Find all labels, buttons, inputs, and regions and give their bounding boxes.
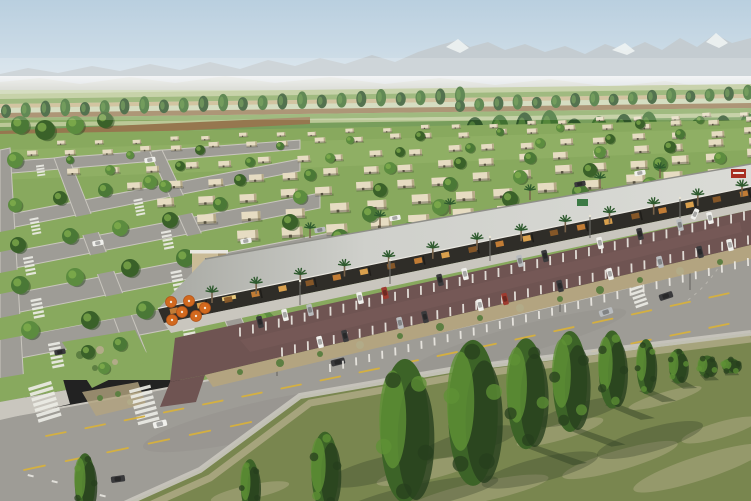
parking-stripe	[359, 329, 361, 338]
house	[412, 194, 433, 206]
house	[565, 125, 577, 132]
tree-highlight	[574, 186, 581, 193]
house	[521, 142, 535, 150]
tree-highlight	[497, 129, 501, 133]
foliage-clump	[411, 376, 427, 392]
car-roof	[114, 476, 121, 481]
house	[65, 150, 77, 157]
atmospheric-haze	[0, 58, 751, 120]
parking-stripe	[682, 275, 684, 283]
house	[593, 137, 607, 145]
parking-stripe	[381, 351, 383, 359]
house-door	[561, 171, 564, 174]
parking-stripe	[665, 229, 667, 238]
house	[315, 137, 327, 144]
pole-lamp	[389, 259, 391, 261]
parking-stripe	[342, 304, 344, 313]
tree-highlight	[596, 148, 601, 153]
shrub	[127, 399, 133, 405]
parking-stripe	[446, 280, 448, 289]
house	[27, 150, 39, 157]
parking-stripe	[447, 334, 449, 342]
house	[218, 161, 232, 169]
parking-stripe	[355, 301, 357, 310]
house	[708, 139, 725, 148]
house-door	[287, 195, 290, 198]
house-door	[250, 145, 252, 147]
parking-stripe	[566, 279, 568, 288]
parking-stripe	[734, 239, 736, 248]
parking-stripe	[304, 313, 306, 322]
foliage-clump	[709, 356, 715, 362]
parking-stripe	[653, 232, 655, 241]
umbrella-tip	[195, 315, 197, 317]
house	[209, 142, 221, 149]
parking-stripe	[342, 361, 344, 369]
house-door	[599, 120, 600, 121]
tree-highlight	[606, 135, 611, 140]
tree-highlight	[246, 158, 251, 163]
house-door	[245, 200, 248, 203]
umbrella-tip	[171, 319, 173, 321]
tree-highlight	[456, 159, 461, 164]
house-door	[712, 160, 715, 163]
shrub	[676, 267, 684, 275]
foliage-clump	[700, 356, 706, 362]
tree-highlight	[12, 239, 19, 246]
house-door	[597, 142, 599, 144]
house	[283, 172, 300, 181]
house-door	[318, 141, 320, 143]
tree-highlight	[585, 165, 591, 171]
parking-stripe	[420, 286, 422, 295]
parking-stripe	[473, 328, 475, 336]
foliage-clump	[537, 397, 549, 409]
house-door	[254, 180, 256, 182]
foliage-clump	[505, 407, 517, 419]
house	[157, 198, 176, 209]
house-door	[525, 147, 527, 149]
parking-stripe	[460, 331, 462, 339]
tree-highlight	[466, 144, 471, 149]
tree-highlight	[176, 162, 181, 167]
parking-stripe	[368, 354, 370, 362]
foliage-clump	[444, 388, 460, 404]
house	[397, 164, 414, 173]
tree-highlight	[196, 146, 201, 151]
scene-canvas	[0, 0, 751, 501]
house-door	[242, 136, 243, 137]
parking-stripe	[368, 298, 370, 307]
foliage-clump	[683, 361, 689, 367]
tree-highlight	[416, 132, 421, 137]
house-door	[204, 202, 207, 205]
parking-stripe	[433, 337, 435, 345]
house-door	[151, 171, 153, 173]
parking-stripe	[691, 223, 693, 232]
tree-highlight	[636, 120, 641, 125]
house-door	[558, 157, 560, 159]
parking-stripe	[407, 344, 409, 352]
parking-stripe	[433, 283, 435, 292]
tree-highlight	[178, 251, 186, 259]
house-door	[321, 193, 324, 196]
house	[390, 133, 402, 140]
parking-stripe	[605, 270, 607, 279]
parking-stripe	[410, 316, 412, 325]
foliage-clump	[74, 495, 81, 501]
house-door	[714, 145, 716, 147]
house-door	[462, 198, 465, 201]
tree-highlight	[375, 185, 381, 191]
parking-stripe	[436, 310, 438, 319]
house	[57, 140, 66, 145]
foliage-clump	[676, 349, 682, 355]
house-door	[248, 218, 251, 221]
tree-highlight	[536, 139, 541, 144]
parking-stripe	[616, 291, 618, 299]
tree-highlight	[295, 192, 301, 198]
tree-highlight	[284, 216, 291, 223]
parking-stripe	[592, 273, 594, 282]
house-door	[492, 127, 493, 128]
tree-highlight	[64, 230, 71, 237]
house-door	[262, 161, 264, 163]
parking-stripe	[577, 301, 579, 309]
parking-stripe	[385, 323, 387, 332]
house	[560, 138, 574, 146]
pole-lamp	[489, 236, 491, 238]
house-door	[190, 167, 192, 169]
shrub	[477, 315, 483, 321]
foliage-clump	[712, 367, 718, 373]
tree-highlight	[23, 323, 31, 331]
house	[146, 166, 160, 174]
house-door	[204, 221, 207, 224]
house-door	[356, 141, 358, 143]
parking-stripe	[394, 292, 396, 301]
parking-stripe	[643, 260, 645, 269]
tree-highlight	[123, 261, 131, 269]
tree-highlight	[164, 214, 171, 221]
parking-stripe	[333, 335, 335, 344]
house-door	[204, 139, 205, 140]
house	[364, 166, 381, 175]
umbrella	[184, 296, 195, 307]
tree-highlight	[114, 222, 121, 229]
house	[171, 145, 183, 152]
parking-stripe	[564, 304, 566, 312]
house-door	[403, 186, 406, 189]
house	[473, 172, 492, 183]
foliage-clump	[720, 361, 726, 367]
house-door	[212, 146, 214, 148]
house	[489, 124, 498, 129]
house	[356, 181, 375, 192]
house	[527, 128, 539, 135]
parking-stripe	[307, 341, 309, 350]
house-door	[98, 143, 99, 144]
parking-stripe	[329, 307, 331, 316]
house-door	[132, 188, 134, 190]
tree-highlight	[277, 143, 281, 147]
umbrella	[200, 303, 211, 314]
tower-cap	[190, 250, 228, 254]
parking-stripe	[329, 364, 331, 372]
house	[208, 179, 225, 188]
foliage-clump	[620, 366, 628, 374]
foliage-clump	[74, 465, 81, 472]
house	[537, 182, 558, 194]
tree-highlight	[67, 157, 71, 161]
umbrella-tip	[170, 301, 172, 303]
house	[708, 120, 720, 127]
foliage-clump	[561, 335, 572, 346]
house	[458, 132, 470, 139]
house-door	[144, 150, 146, 152]
parking-stripe	[656, 281, 658, 289]
house-door	[418, 201, 421, 204]
parking-stripe	[575, 250, 577, 259]
house-door	[568, 129, 570, 131]
house	[421, 125, 430, 130]
foliage-clump	[253, 468, 259, 474]
parking-stripe	[512, 318, 514, 326]
house-door	[348, 132, 349, 133]
parking-stripe	[708, 245, 710, 254]
shrub	[317, 351, 323, 357]
house-door	[413, 154, 415, 156]
shrub	[637, 277, 643, 283]
parking-stripe	[523, 262, 525, 271]
parking-stripe	[407, 289, 409, 298]
house	[744, 127, 751, 135]
parking-stripe	[278, 319, 280, 328]
parking-stripe	[618, 267, 620, 276]
tree-highlight	[445, 179, 451, 185]
house-door	[362, 188, 365, 191]
house	[67, 168, 81, 176]
tree-highlight	[83, 313, 91, 321]
house	[140, 146, 152, 153]
house	[449, 145, 463, 153]
parking-stripe	[525, 314, 527, 322]
umbrella	[166, 297, 177, 308]
foliage-clump	[641, 386, 647, 392]
parking-stripe	[642, 284, 644, 292]
foliage-clump	[679, 376, 685, 382]
shrub	[436, 323, 444, 331]
house-door	[437, 183, 440, 186]
house	[632, 133, 646, 141]
house-door	[588, 187, 591, 190]
foliage-clump	[522, 434, 534, 446]
parking-stripe	[449, 307, 451, 316]
tree-highlight	[100, 364, 105, 369]
foliage-clump	[385, 372, 401, 388]
tree-highlight	[515, 172, 521, 178]
foliage-clump	[254, 495, 260, 501]
parking-stripe	[462, 304, 464, 313]
parking-stripe	[294, 344, 296, 353]
tree-highlight	[13, 278, 21, 286]
parking-stripe	[730, 214, 732, 223]
house	[671, 120, 683, 127]
pole-lamp	[589, 215, 591, 217]
parking-stripe	[549, 256, 551, 265]
house-door	[31, 154, 33, 156]
tree-highlight	[364, 208, 371, 215]
tree-highlight	[115, 339, 121, 345]
house-door	[71, 173, 73, 175]
house	[630, 160, 649, 171]
house-door	[544, 190, 547, 193]
house	[634, 145, 651, 154]
foliage-clump	[528, 347, 540, 359]
tree-highlight	[38, 123, 47, 132]
house	[323, 168, 340, 177]
house	[249, 174, 266, 183]
shrub	[112, 359, 118, 365]
parking-stripe	[538, 311, 540, 319]
house	[553, 152, 570, 161]
house	[747, 148, 751, 159]
foliage-clump	[611, 397, 619, 405]
foliage-clump	[696, 366, 702, 372]
house-door	[455, 127, 456, 128]
foliage-clump	[598, 384, 606, 392]
tree-highlight	[68, 270, 76, 278]
tree-highlight	[557, 125, 561, 129]
house-door	[369, 172, 371, 174]
tree-highlight	[434, 201, 441, 208]
house-door	[68, 154, 70, 156]
pole-lamp	[299, 280, 301, 282]
foliage-clump	[558, 415, 569, 426]
house-door	[174, 149, 176, 151]
house-door	[484, 164, 486, 166]
parking-stripe	[372, 326, 374, 335]
foliage-clump	[612, 334, 620, 342]
house-door	[288, 178, 290, 180]
foliage-clump	[669, 374, 675, 380]
parking-stripe	[265, 322, 267, 331]
house-door	[302, 160, 304, 162]
house-door	[136, 143, 137, 144]
foliage-clump	[549, 372, 560, 383]
shrub	[516, 304, 524, 312]
tree-highlight	[666, 143, 671, 148]
tree-canopy-light	[74, 458, 85, 499]
parking-stripe	[669, 278, 671, 286]
foliage-clump	[85, 456, 92, 463]
parking-stripe	[488, 298, 490, 307]
tree-highlight	[9, 154, 16, 161]
tree-highlight	[504, 193, 511, 200]
parking-stripe	[747, 235, 749, 244]
house	[602, 124, 614, 131]
tree-highlight	[326, 154, 331, 159]
parking-stripe	[355, 357, 357, 365]
aerial-rendering	[0, 0, 751, 501]
foliage-clump	[598, 346, 606, 354]
house	[369, 150, 383, 158]
foliage-clump	[91, 480, 98, 487]
house-door	[462, 136, 464, 138]
parking-stripe	[630, 263, 632, 272]
foliage-clump	[418, 445, 434, 461]
foliage-clump	[479, 453, 495, 469]
parking-stripe	[708, 268, 710, 276]
tree-highlight	[236, 176, 241, 181]
foliage-clump	[578, 355, 589, 366]
house-door	[530, 132, 532, 134]
green-awning	[577, 199, 588, 206]
parking-stripe	[291, 316, 293, 325]
parking-stripe	[614, 241, 616, 250]
house-door	[374, 155, 376, 157]
house-door	[60, 144, 61, 145]
house-door	[639, 151, 641, 153]
parking-stripe	[579, 276, 581, 285]
house	[95, 140, 104, 145]
tree-highlight	[161, 182, 166, 187]
house-door	[163, 204, 166, 207]
parking-stripe	[704, 220, 706, 229]
foliage-clump	[244, 462, 250, 468]
shrub	[397, 333, 403, 339]
tree-highlight	[55, 193, 61, 199]
pole-lamp	[679, 197, 681, 199]
house-door	[637, 138, 639, 140]
house-door	[716, 136, 718, 138]
house-door	[173, 186, 175, 188]
house-door	[486, 149, 488, 151]
foliage-clump	[649, 349, 655, 355]
house-door	[712, 124, 714, 126]
shrub	[276, 359, 284, 367]
foliage-clump	[668, 357, 674, 363]
parking-stripe	[553, 282, 555, 291]
parking-stripe	[486, 324, 488, 332]
tree-highlight	[306, 171, 311, 176]
house	[308, 132, 317, 137]
house	[555, 165, 574, 176]
foliage-clump	[312, 491, 321, 500]
parking-stripe	[499, 321, 501, 329]
umbrella	[167, 315, 178, 326]
house	[527, 120, 536, 125]
foliage-clump	[723, 368, 729, 374]
parking-stripe	[734, 261, 736, 269]
umbrella	[177, 307, 188, 318]
house	[127, 182, 144, 191]
tree-highlight	[347, 137, 351, 141]
tree-canopy-light	[636, 344, 646, 381]
house-door	[386, 131, 387, 132]
house	[102, 149, 114, 156]
house	[241, 211, 262, 223]
parking-stripe	[562, 253, 564, 262]
shrub	[596, 286, 604, 294]
parking-stripe	[603, 294, 605, 302]
tree-canopy-light	[311, 438, 326, 492]
parking-stripe	[459, 277, 461, 286]
house	[239, 194, 258, 205]
house-door	[530, 124, 531, 125]
foliage-clump	[728, 357, 734, 363]
house-door	[394, 137, 396, 139]
